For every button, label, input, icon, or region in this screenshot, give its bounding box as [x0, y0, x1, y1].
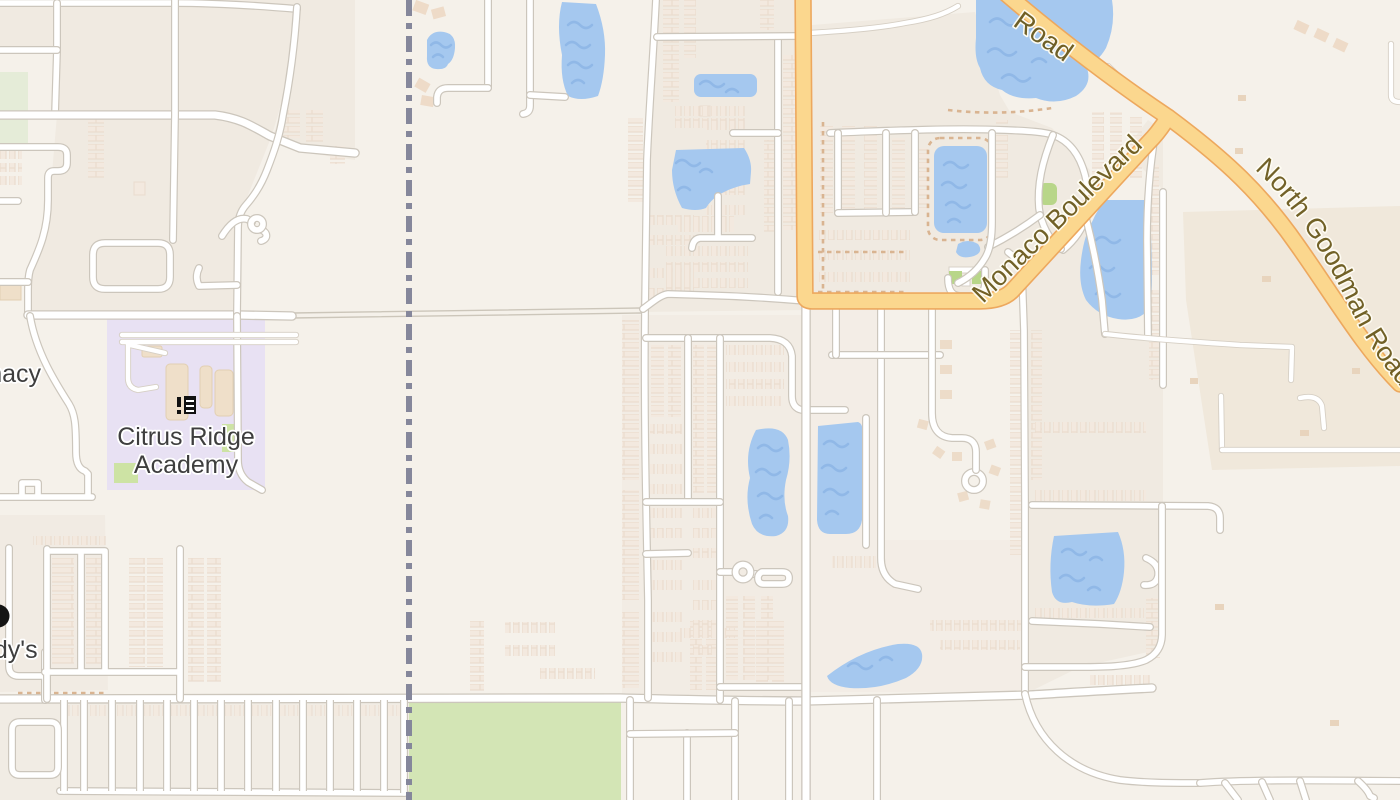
svg-text:Citrus Ridge: Citrus Ridge	[117, 423, 255, 451]
svg-text:ndy's: ndy's	[0, 636, 38, 664]
svg-text:rmacy: rmacy	[0, 360, 42, 388]
svg-text:Academy: Academy	[134, 451, 239, 479]
